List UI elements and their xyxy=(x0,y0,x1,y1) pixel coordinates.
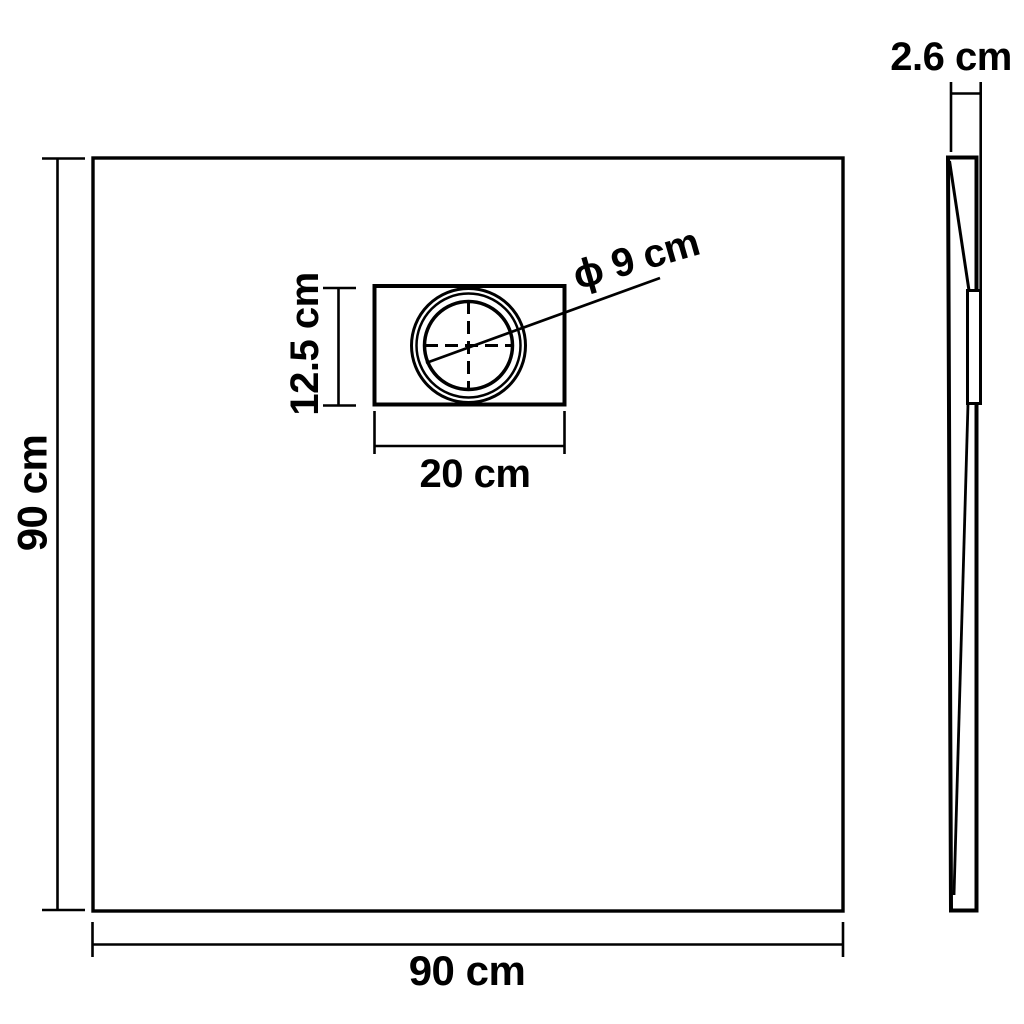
tray-side-profile-inner-slope xyxy=(954,404,968,896)
thickness-label: 2.6 cm xyxy=(890,35,1012,79)
drain-width-label: 20 cm xyxy=(420,452,531,496)
tray-side-profile-outline xyxy=(948,158,977,911)
tray-width-label: 90 cm xyxy=(409,947,526,994)
product-dimension-diagram: ϕ 9 cm 12.5 cm 20 cm 90 cm 90 cm 2.6 cm xyxy=(0,0,1024,1024)
tray-side-profile-top-slope xyxy=(950,161,970,291)
tray-top-view-outline xyxy=(93,158,843,911)
tray-side-profile-drain-bump xyxy=(968,291,981,404)
drain-height-label: 12.5 cm xyxy=(283,272,327,415)
tray-height-label: 90 cm xyxy=(9,435,56,552)
drain-diameter-leader-line xyxy=(426,278,660,363)
dimension-drawing-svg: ϕ 9 cm 12.5 cm 20 cm 90 cm 90 cm 2.6 cm xyxy=(0,0,1024,1024)
